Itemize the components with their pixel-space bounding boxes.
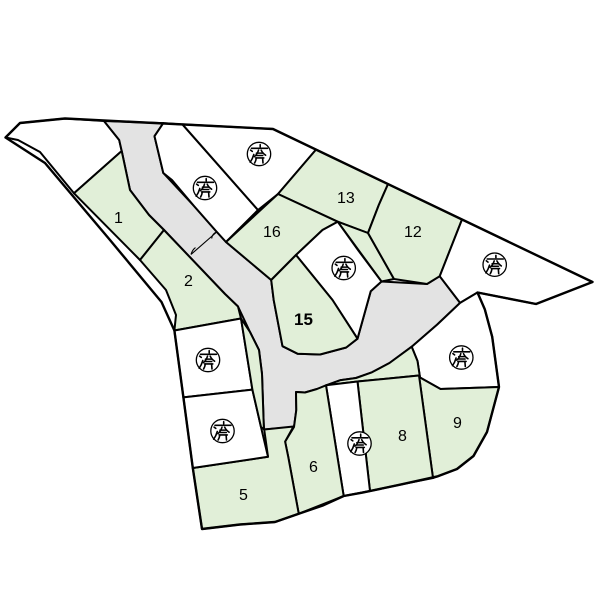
svg-text:16: 16	[263, 224, 281, 241]
svg-text:5: 5	[239, 487, 248, 504]
svg-text:1: 1	[114, 210, 123, 227]
svg-text:15: 15	[294, 310, 313, 329]
svg-text:9: 9	[453, 415, 462, 432]
svg-text:6: 6	[309, 459, 318, 476]
svg-text:8: 8	[398, 428, 407, 445]
svg-text:2: 2	[184, 273, 193, 290]
svg-text:13: 13	[337, 190, 355, 207]
svg-text:12: 12	[404, 224, 422, 241]
